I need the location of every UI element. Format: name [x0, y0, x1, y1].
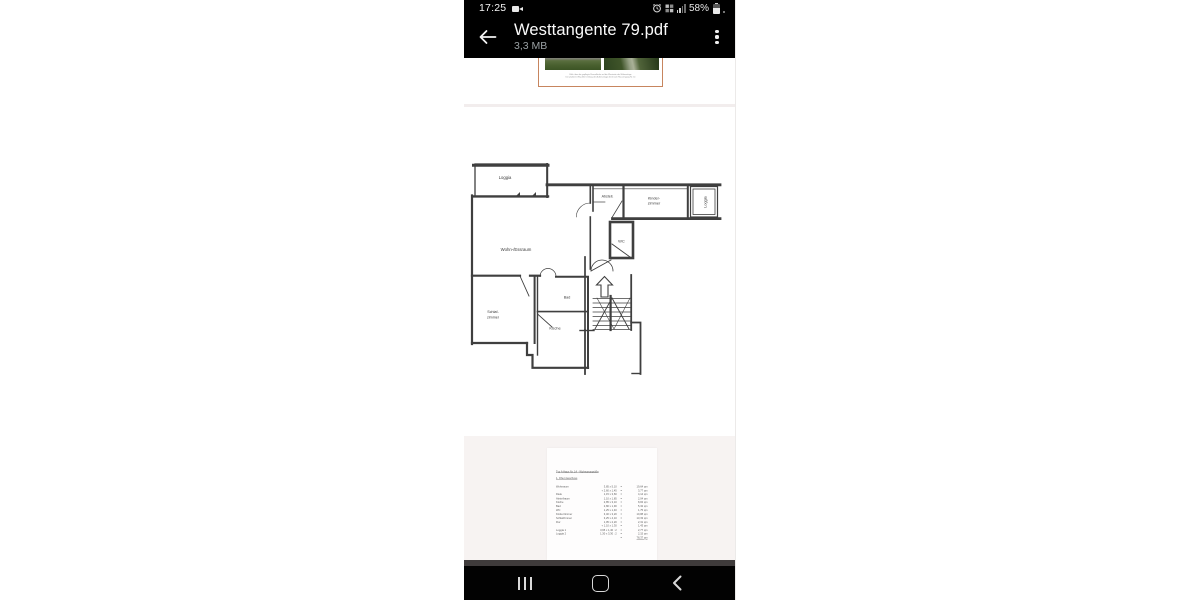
- table-row: =78,37 qm: [556, 536, 650, 540]
- back-button[interactable]: [476, 26, 498, 48]
- svg-text:zimmer: zimmer: [487, 316, 500, 320]
- room-label-loggia-left: Loggia: [499, 175, 512, 180]
- nav-back-button[interactable]: [661, 566, 693, 600]
- photo-frame: Blick über die gepflegte Rasenfläche auf…: [538, 58, 663, 87]
- home-button[interactable]: [584, 566, 616, 600]
- battery-icon: [713, 3, 720, 14]
- pdf-scroll-area[interactable]: Blick über die gepflegte Rasenfläche auf…: [464, 58, 735, 560]
- room-label-schlafzimmer: Schlaf-: [487, 310, 499, 314]
- room-label-wc: WC: [618, 239, 625, 244]
- room-label-wohnraum: Wohn-/Essraum: [501, 247, 532, 252]
- back-icon: [672, 575, 682, 591]
- photo-garden-left: [545, 58, 601, 70]
- video-camera-icon: [512, 6, 523, 12]
- battery-percent: 58%: [689, 3, 709, 14]
- status-dot: [723, 11, 725, 13]
- pdf-page-3-region: Typ A Haus Nr. 14 - Wohnungsgröße 1. Obe…: [464, 436, 735, 560]
- top-bar: 17:25: [464, 0, 735, 58]
- photo-garden-right: [604, 58, 659, 70]
- arrow-left-icon: [478, 29, 497, 45]
- recents-button[interactable]: [509, 566, 541, 600]
- svg-text:zimmer: zimmer: [648, 202, 661, 206]
- clock: 17:25: [479, 2, 506, 14]
- pdf-page-2: Loggia Abstell. Kinder- zimmer Loggia WC…: [464, 107, 735, 436]
- app-header: Westtangente 79.pdf 3,3 MB: [464, 16, 735, 58]
- room-label-abstellraum: Abstell.: [602, 195, 614, 199]
- overflow-menu-icon: [715, 30, 718, 33]
- room-label-bad: Bad: [564, 296, 571, 300]
- overflow-menu-button[interactable]: [709, 26, 725, 48]
- area-table: Wohnraum3,85 x 5,10=19,64 qm+ 2,60 x 1,4…: [556, 485, 650, 540]
- pdf-page-1: Blick über die gepflegte Rasenfläche auf…: [464, 58, 735, 104]
- room-label-loggia-right: Loggia: [704, 195, 708, 207]
- caption-line-2: Der plattierte Weg führt entlang der Auß…: [539, 76, 662, 79]
- home-icon: [592, 575, 609, 592]
- volte-icon: [665, 4, 674, 13]
- status-bar: 17:25: [464, 0, 735, 16]
- sheet-heading: Typ A Haus Nr. 14 - Wohnungsgröße: [556, 470, 650, 474]
- alarm-icon: [652, 3, 662, 13]
- document-title: Westtangente 79.pdf: [514, 22, 668, 39]
- floor-plan-drawing: Loggia Abstell. Kinder- zimmer Loggia WC…: [464, 107, 735, 436]
- phone-screen: 17:25: [464, 0, 736, 600]
- navigation-bar: [464, 566, 735, 600]
- room-label-kinderzimmer: Kinder-: [648, 197, 661, 201]
- sheet-subheading: 1. Ober-Geschoss: [556, 477, 650, 481]
- recents-icon: [518, 577, 520, 590]
- area-calculation-sheet: Typ A Haus Nr. 14 - Wohnungsgröße 1. Obe…: [547, 448, 657, 560]
- document-size: 3,3 MB: [514, 41, 668, 52]
- screenshot-stage: 17:25: [0, 0, 1200, 600]
- photo-caption: Blick über die gepflegte Rasenfläche auf…: [539, 73, 662, 84]
- room-label-kueche: Küche: [549, 326, 561, 331]
- signal-icon: [677, 4, 686, 13]
- document-title-block: Westtangente 79.pdf 3,3 MB: [514, 22, 668, 52]
